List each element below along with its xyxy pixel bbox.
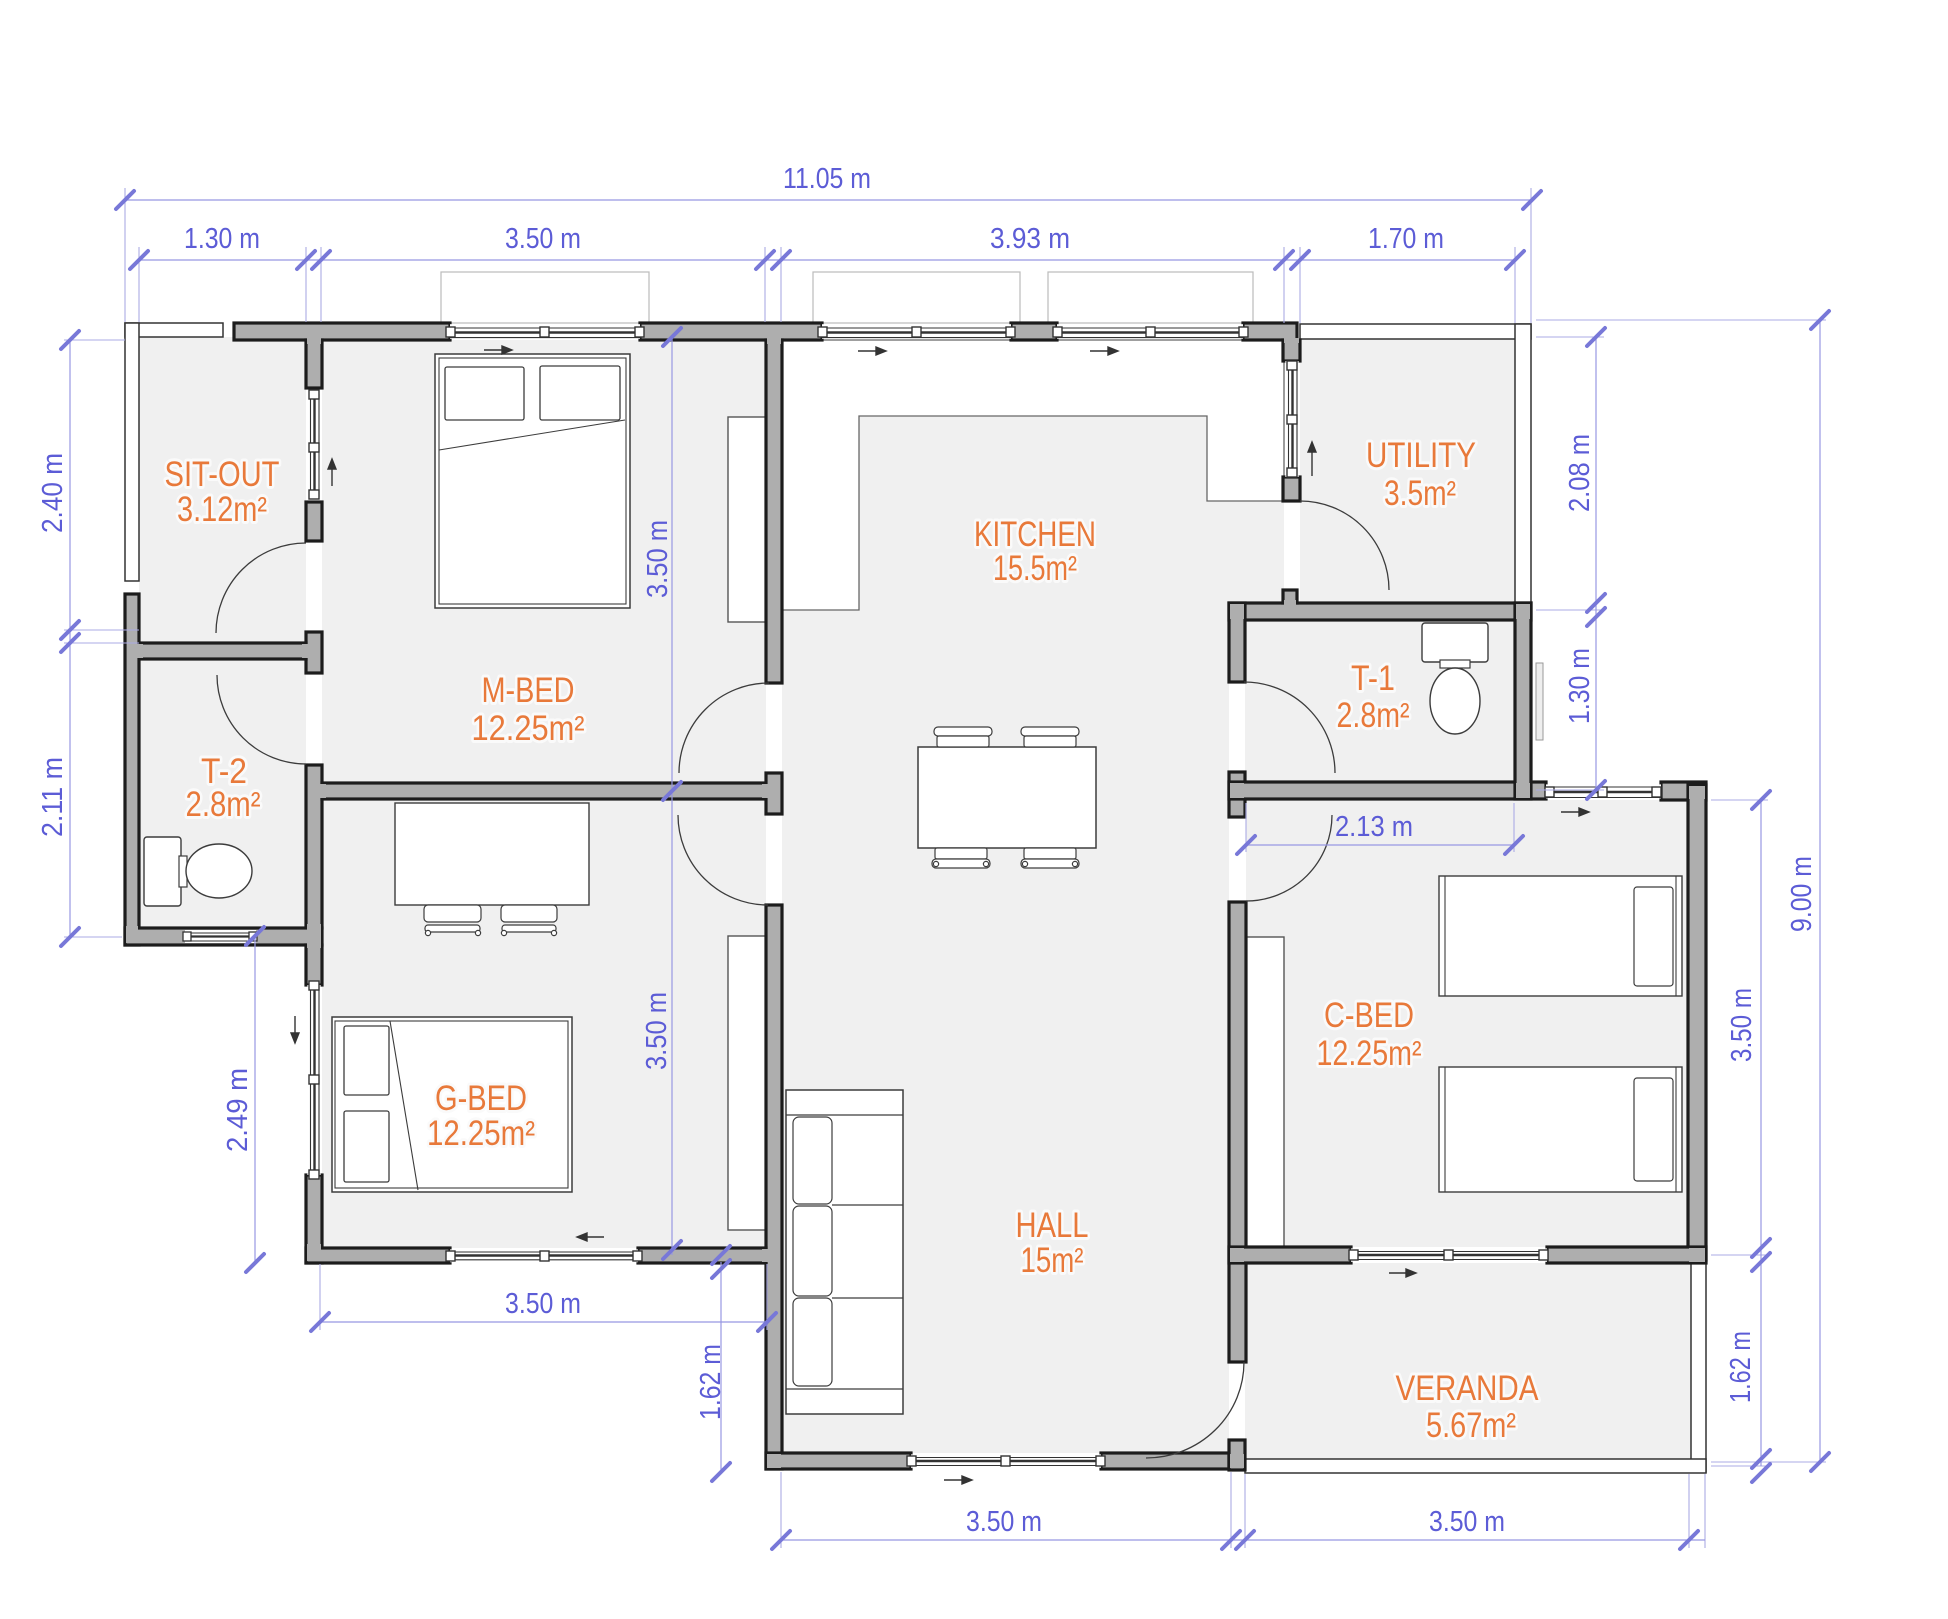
svg-text:3.50 m: 3.50 m <box>505 1288 581 1320</box>
svg-text:3.5m²: 3.5m² <box>1384 474 1456 513</box>
svg-text:3.93 m: 3.93 m <box>990 223 1070 255</box>
svg-text:3.50 m: 3.50 m <box>505 223 581 255</box>
svg-text:1.30 m: 1.30 m <box>184 223 260 255</box>
svg-text:12.25m²: 12.25m² <box>472 709 585 748</box>
svg-text:3.12m²: 3.12m² <box>177 490 267 529</box>
svg-text:3.50 m: 3.50 m <box>966 1506 1042 1538</box>
svg-text:2.08 m: 2.08 m <box>1564 434 1596 512</box>
svg-text:1.62 m: 1.62 m <box>1725 1331 1757 1403</box>
svg-text:1.70 m: 1.70 m <box>1368 223 1444 255</box>
svg-text:2.49 m: 2.49 m <box>222 1068 254 1152</box>
svg-text:SIT-OUT: SIT-OUT <box>165 455 280 494</box>
svg-text:UTILITY: UTILITY <box>1366 436 1476 475</box>
svg-text:2.40 m: 2.40 m <box>37 453 69 533</box>
svg-text:1.30 m: 1.30 m <box>1564 648 1596 724</box>
svg-text:12.25m²: 12.25m² <box>427 1114 535 1153</box>
svg-text:M-BED: M-BED <box>482 671 575 710</box>
svg-text:3.50 m: 3.50 m <box>641 992 673 1070</box>
svg-text:2.8m²: 2.8m² <box>186 785 261 824</box>
svg-text:3.50 m: 3.50 m <box>1726 988 1758 1062</box>
svg-text:11.05 m: 11.05 m <box>783 163 871 195</box>
svg-text:12.25m²: 12.25m² <box>1317 1034 1422 1073</box>
svg-text:VERANDA: VERANDA <box>1396 1369 1540 1408</box>
svg-text:2.11 m: 2.11 m <box>37 757 69 837</box>
svg-text:15.5m²: 15.5m² <box>993 549 1077 588</box>
svg-text:5.67m²: 5.67m² <box>1426 1406 1516 1445</box>
svg-text:HALL: HALL <box>1016 1206 1089 1245</box>
svg-text:1.62 m: 1.62 m <box>695 1344 727 1420</box>
svg-text:G-BED: G-BED <box>435 1079 527 1118</box>
svg-text:T-1: T-1 <box>1351 659 1395 698</box>
svg-text:3.50 m: 3.50 m <box>1429 1506 1505 1538</box>
svg-text:3.50 m: 3.50 m <box>642 520 674 598</box>
svg-text:C-BED: C-BED <box>1324 996 1414 1035</box>
svg-text:9.00 m: 9.00 m <box>1786 856 1818 932</box>
svg-text:2.8m²: 2.8m² <box>1337 696 1410 735</box>
svg-text:15m²: 15m² <box>1021 1241 1084 1280</box>
svg-text:2.13 m: 2.13 m <box>1335 811 1413 843</box>
